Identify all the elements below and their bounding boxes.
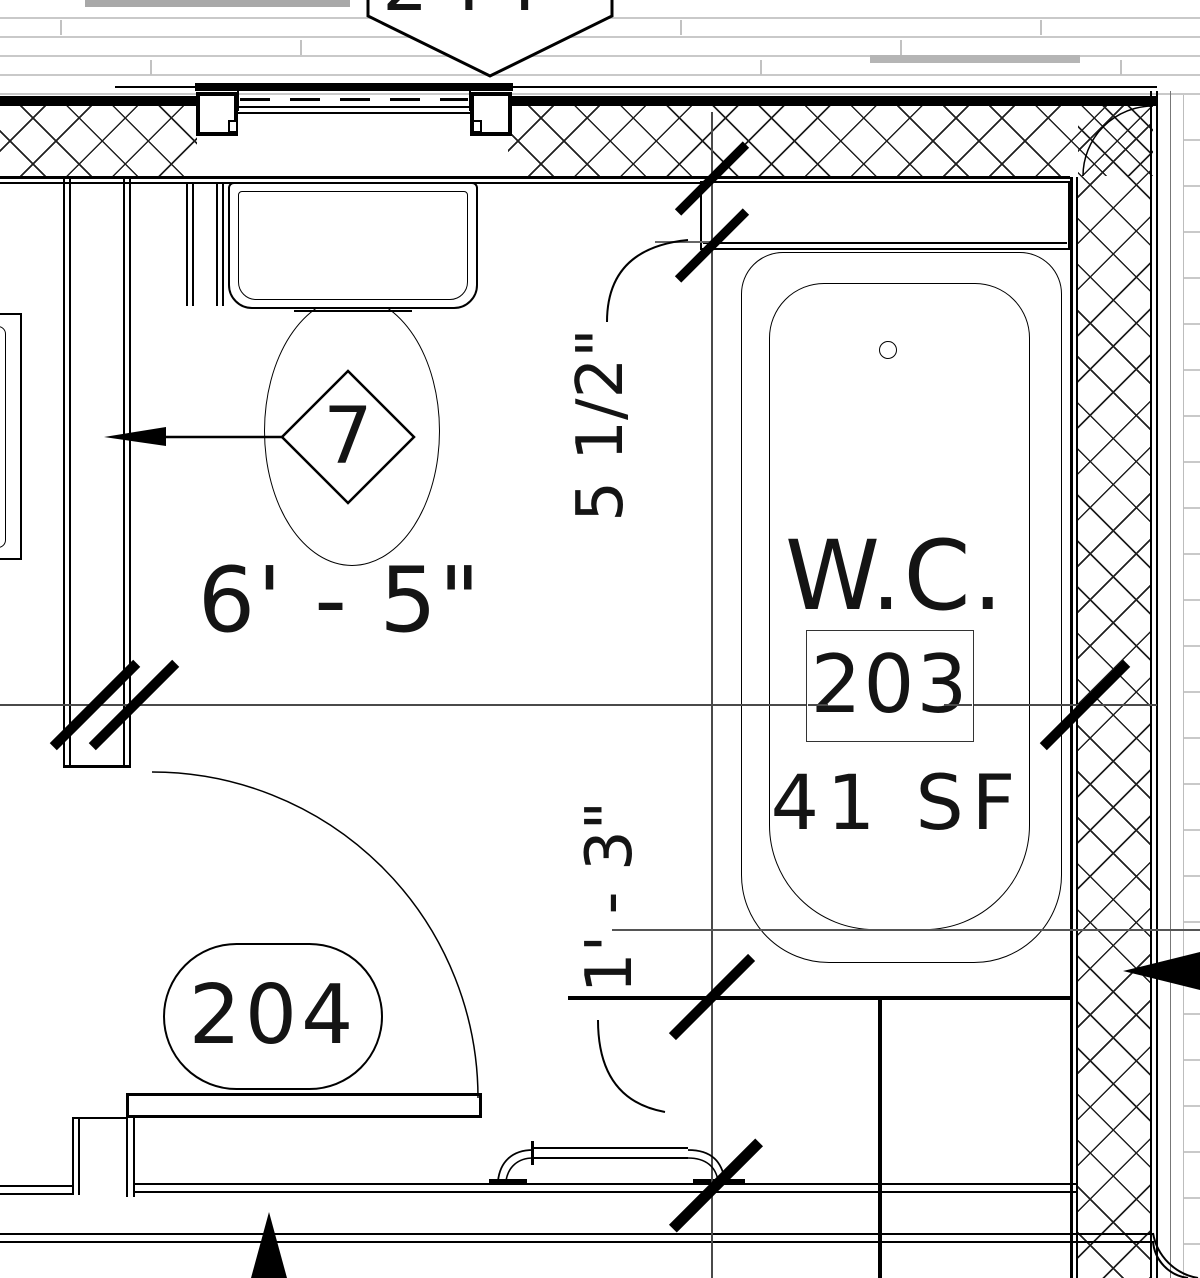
dimension-offset-label: 5 1/2" (549, 275, 653, 575)
door-jamb-return (78, 1117, 80, 1195)
window-jamb-notch (228, 120, 238, 133)
right-wall-outer-face (1150, 91, 1152, 1278)
window-glazing-line (238, 112, 470, 114)
door-jamb-line (126, 1118, 128, 1197)
jamb-return-line (222, 182, 224, 306)
room-area-label: 41 SF (762, 758, 1032, 847)
grab-bar (534, 1157, 688, 1159)
grab-bar-bracket (506, 1158, 533, 1181)
reference-line-tub-deck (612, 929, 1200, 931)
grab-bar-bracket (498, 1150, 533, 1181)
window-tag-label: 244 (378, 0, 554, 15)
toilet-tank-inner (238, 191, 468, 300)
top-wall-hatch (508, 106, 1153, 176)
top-wall-hatch (0, 106, 197, 176)
tub-ledge (700, 181, 1070, 250)
room-number-label: 203 (807, 631, 973, 741)
window-head (195, 83, 513, 91)
right-wall-inner-face (1070, 177, 1073, 1278)
siding-joint (680, 20, 682, 35)
siding-pattern-right (1183, 95, 1200, 1278)
jamb-return-line (186, 182, 188, 306)
dimension-line-stub (944, 704, 972, 706)
siding-joint (1040, 20, 1042, 35)
left-wall-face (129, 177, 131, 768)
extension-line-vertical (711, 112, 713, 1278)
right-wall-sheathing-line (1170, 91, 1171, 1278)
south-wall-left-segment (0, 1193, 74, 1195)
door-tag-pill: 204 (163, 943, 383, 1090)
left-room-fixture-inner (0, 326, 6, 548)
top-wall-inner-face (0, 176, 1070, 179)
dimension-vertical-label: 1' - 3" (558, 727, 662, 1067)
siding-joint (150, 60, 152, 75)
wc-south-wall-face (133, 1191, 1077, 1193)
north-arrowhead-icon (251, 1212, 287, 1278)
grab-bar-foot (489, 1179, 527, 1185)
corridor-wall-face (0, 1241, 1153, 1243)
door-jamb-cap (72, 1117, 128, 1119)
left-wall-face (69, 177, 71, 768)
right-wall-outer-face (1156, 91, 1158, 1278)
tub-ledge-inner-line (703, 242, 1067, 244)
siding-pattern-top (0, 0, 1200, 95)
extension-line-stub (655, 241, 712, 243)
keynote-arrowhead-icon (104, 427, 166, 446)
dimension-tick (669, 1138, 763, 1232)
dimension-line-horizontal (0, 704, 1157, 706)
room-number-box: 203 (806, 630, 974, 742)
jamb-return-line (192, 182, 194, 306)
left-wall-face (63, 177, 65, 768)
window-header-dashed-line (240, 98, 468, 101)
door-jamb-line (133, 1118, 135, 1197)
siding-joint (1120, 60, 1122, 75)
jamb-return-line (216, 182, 218, 306)
keynote-label: 7 (308, 396, 388, 478)
south-wall-left-segment (0, 1185, 74, 1187)
window-tag-text-clip: 244 (378, 0, 554, 15)
siding-joint (900, 40, 902, 55)
grab-bar-flange (531, 1141, 534, 1165)
door-tag-label: 204 (165, 945, 381, 1086)
cabinet-side-line (878, 998, 882, 1278)
tub-drain (879, 341, 897, 359)
window-glazing-line (238, 106, 470, 108)
room-name-label: W.C. (765, 520, 1025, 632)
door-jamb-return (72, 1117, 74, 1195)
siding-joint (760, 60, 762, 75)
dimension-horizontal-label: 6' - 5" (175, 548, 505, 653)
dimension-line-stub (808, 704, 828, 706)
siding-joint (300, 40, 302, 55)
siding-shadow-band (85, 0, 350, 7)
wc-south-wall-face (133, 1183, 1077, 1185)
corridor-wall-face (0, 1233, 1153, 1235)
floor-plan: 244 203 204 7 W.C. 41 SF 6' - 5" 5 1/2" … (0, 0, 1200, 1278)
right-wall-hatch (1078, 106, 1150, 1278)
grab-bar (534, 1147, 688, 1149)
left-wall-end-cap (63, 765, 131, 768)
siding-shadow-band (870, 55, 1080, 63)
top-wall-outer-face (0, 96, 197, 106)
door-leaf (126, 1093, 482, 1118)
window-jamb-notch (472, 120, 482, 133)
top-wall-outer-face (508, 96, 1157, 106)
grab-bar-bracket (688, 1158, 718, 1181)
siding-joint (60, 20, 62, 35)
toilet-seat-hinge (294, 310, 412, 312)
